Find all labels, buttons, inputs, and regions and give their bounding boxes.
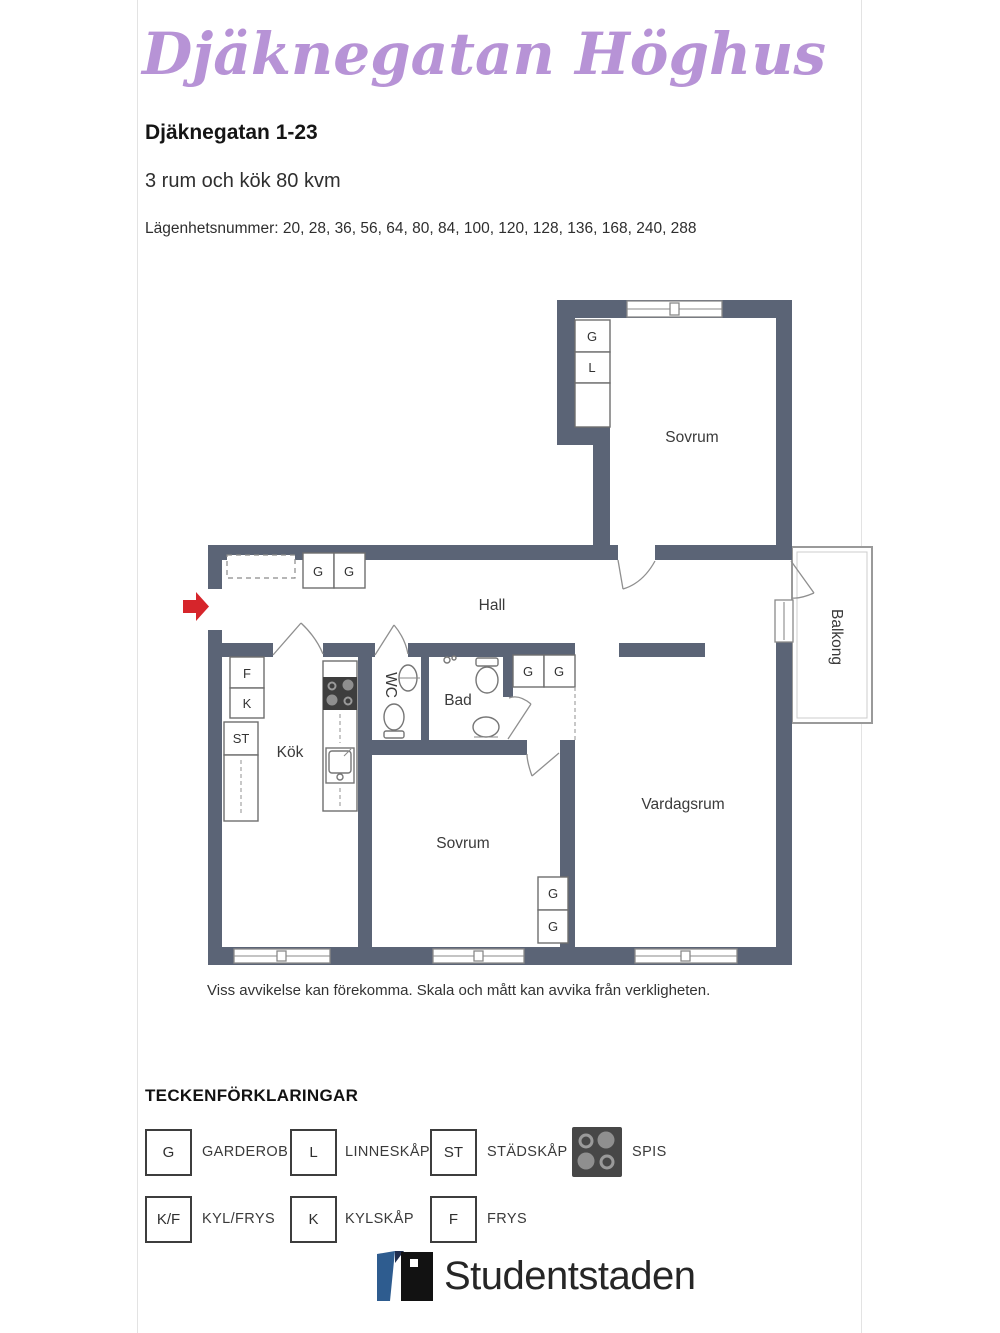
closet-label: G (548, 886, 558, 901)
floorplan-document: Djäknegatan Höghus Djäknegatan 1-23 3 ru… (0, 0, 1000, 1333)
room-label-bathroom: Bad (444, 692, 472, 709)
legend-label-garderob: GARDEROB (202, 1129, 288, 1176)
closet-label: L (588, 360, 595, 375)
closet-label: G (344, 564, 354, 579)
studentstaden-logo-icon (377, 1250, 437, 1302)
brand-name: Studentstaden (444, 1254, 696, 1299)
bath-sink-icon (473, 717, 499, 737)
legend-label-kylskap: KYLSKÅP (345, 1196, 414, 1243)
page-edge-left (137, 0, 138, 1333)
windows (234, 301, 793, 963)
apartment-size: 3 rum och kök 80 kvm (145, 170, 341, 193)
door-bathroom (508, 697, 531, 739)
room-label-kitchen: Kök (277, 744, 304, 761)
closet-label: G (548, 919, 558, 934)
room-label-balcony: Balkong (828, 609, 845, 665)
legend-label-spis: SPIS (632, 1129, 667, 1176)
page-title: Djäknegatan Höghus (142, 20, 826, 88)
fridge-label: K (243, 696, 252, 711)
wc-sink-icon (399, 665, 420, 691)
hall-dashed-cabinet (227, 555, 295, 578)
entrance-arrow-icon (183, 592, 209, 621)
closet-label: G (554, 664, 564, 679)
closet-box (575, 383, 610, 427)
wc-toilet-icon (384, 704, 404, 738)
room-label-wc: WC (382, 672, 399, 698)
legend-symbol-linneskap: L (290, 1129, 337, 1176)
closets: G L G G G G G G F K ST (224, 320, 610, 943)
sink-icon (326, 748, 354, 783)
stove-icon (323, 677, 357, 710)
walls (208, 300, 792, 965)
legend-label-stadskap: STÄDSKÅP (487, 1129, 568, 1176)
room-label-bedroom-top: Sovrum (665, 429, 718, 446)
legend-label-kylfrys: KYL/FRYS (202, 1196, 275, 1243)
freezer-label: F (243, 666, 251, 681)
stove-icon (572, 1127, 622, 1177)
legend-label-linneskap: LINNESKÅP (345, 1129, 430, 1176)
disclaimer-text: Viss avvikelse kan förekomma. Skala och … (207, 982, 710, 999)
room-label-living-room: Vardagsrum (641, 796, 724, 813)
legend-symbol-stadskap: ST (430, 1129, 477, 1176)
door-kitchen (273, 623, 323, 655)
legend-symbol-kylfrys: K/F (145, 1196, 192, 1243)
closet-label: G (523, 664, 533, 679)
floorplan-drawing: G L G G G G G G F K ST (180, 290, 880, 980)
door-wc (375, 625, 408, 655)
faucet-icon (444, 657, 450, 663)
legend-symbol-kylskap: K (290, 1196, 337, 1243)
studentstaden-logo: Studentstaden (377, 1250, 696, 1302)
kitchen-fixtures (323, 661, 357, 811)
window-living-room (635, 949, 737, 963)
door-bedroom-top (618, 560, 655, 589)
window-bedroom-top (627, 301, 722, 317)
street-address: Djäknegatan 1-23 (145, 121, 318, 145)
room-label-bedroom-bottom: Sovrum (436, 835, 489, 852)
door-bedroom-bottom (527, 753, 559, 776)
room-label-hall: Hall (479, 597, 506, 614)
window-bedroom-bottom (433, 949, 524, 963)
window-balcony-side (775, 600, 793, 642)
window-kitchen (234, 949, 330, 963)
bath-toilet-icon (476, 658, 498, 693)
legend-heading: TECKENFÖRKLARINGAR (145, 1086, 358, 1106)
legend-label-frys: FRYS (487, 1196, 527, 1243)
legend-symbol-frys: F (430, 1196, 477, 1243)
cleaning-closet-label: ST (233, 731, 250, 746)
closet-label: G (313, 564, 323, 579)
apartment-numbers: Lägenhetsnummer: 20, 28, 36, 56, 64, 80,… (145, 220, 697, 238)
legend-symbol-garderob: G (145, 1129, 192, 1176)
closet-label: G (587, 329, 597, 344)
